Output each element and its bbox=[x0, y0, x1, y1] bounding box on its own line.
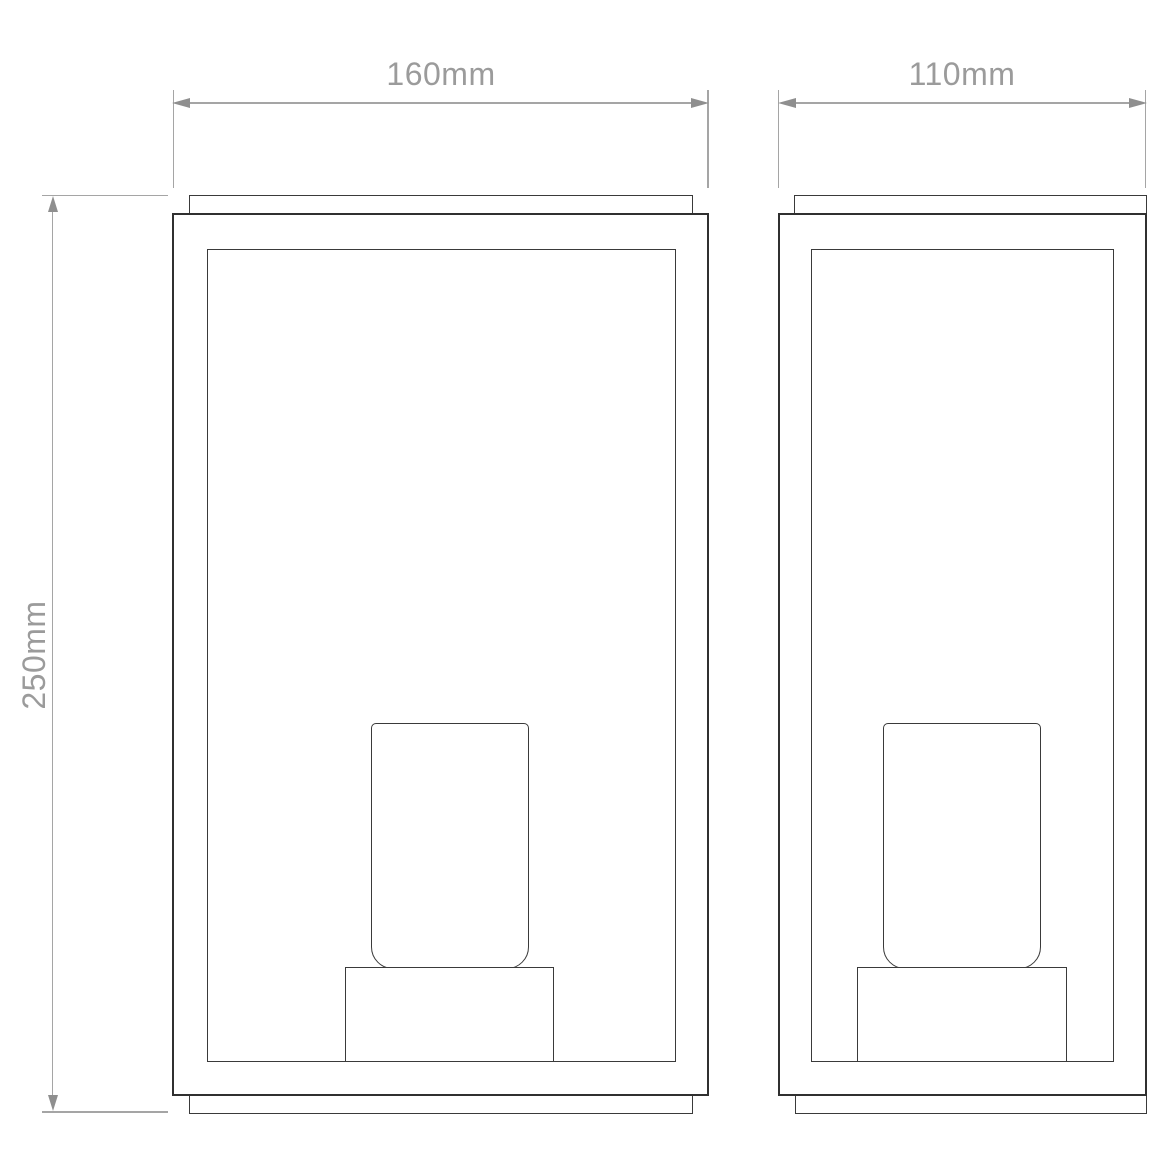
side-lamp-holder bbox=[857, 967, 1067, 1062]
front-bottom-plate bbox=[189, 1094, 693, 1114]
height-dimension bbox=[47, 196, 59, 1111]
dimension-line bbox=[796, 102, 1129, 104]
front-top-plate bbox=[189, 195, 693, 214]
extension-line bbox=[42, 195, 168, 197]
extension-line bbox=[42, 1111, 168, 1113]
dimension-drawing-canvas: 160mm 110mm 250mm bbox=[0, 0, 1170, 1170]
arrow-left-icon bbox=[778, 98, 796, 108]
side-depth-dimension bbox=[778, 97, 1147, 109]
side-top-plate bbox=[794, 195, 1147, 214]
side-lamp-bulb bbox=[883, 723, 1041, 969]
arrow-right-icon bbox=[691, 98, 709, 108]
arrow-down-icon bbox=[48, 1095, 58, 1111]
front-width-dimension bbox=[172, 97, 709, 109]
front-lamp-bulb bbox=[371, 723, 529, 969]
arrow-right-icon bbox=[1129, 98, 1147, 108]
side-depth-label: 110mm bbox=[862, 56, 1062, 92]
side-bottom-plate bbox=[795, 1094, 1147, 1114]
dimension-line bbox=[52, 212, 54, 1095]
arrow-left-icon bbox=[172, 98, 190, 108]
arrow-up-icon bbox=[48, 196, 58, 212]
dimension-line bbox=[190, 102, 691, 104]
front-width-label: 160mm bbox=[341, 56, 541, 92]
front-lamp-holder bbox=[345, 967, 554, 1062]
